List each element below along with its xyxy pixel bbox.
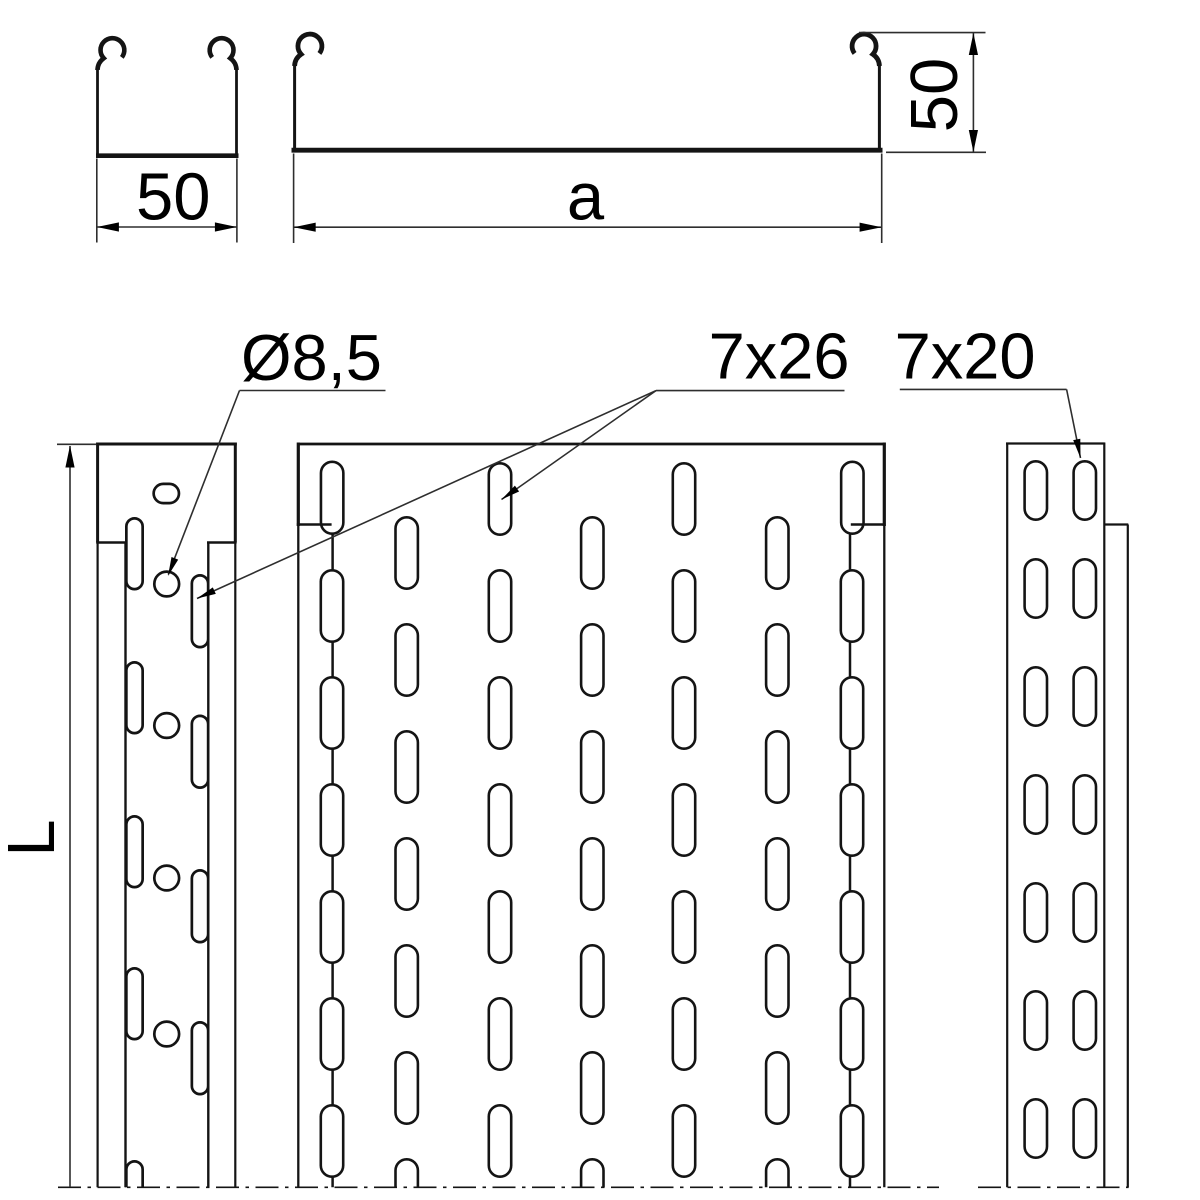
svg-text:a: a — [567, 160, 605, 235]
svg-text:Ø8,5: Ø8,5 — [241, 321, 382, 394]
svg-text:50: 50 — [136, 160, 211, 235]
svg-text:L: L — [0, 819, 69, 856]
svg-text:50: 50 — [897, 58, 972, 133]
svg-text:7x20: 7x20 — [895, 320, 1036, 393]
svg-text:7x26: 7x26 — [709, 320, 850, 393]
